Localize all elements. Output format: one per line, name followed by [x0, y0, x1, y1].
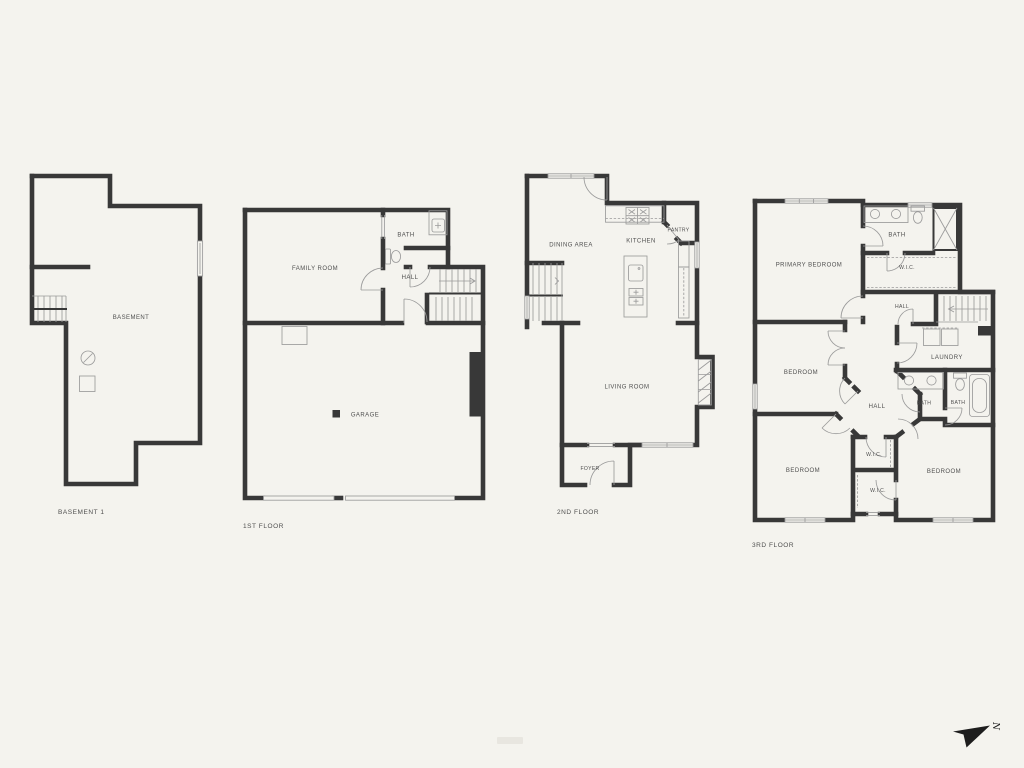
room-label-basement: BASEMENT	[113, 315, 150, 321]
room-label-bedroom3: BEDROOM	[786, 468, 820, 474]
room-label-living: LIVING ROOM	[605, 385, 650, 391]
north-arrow-icon: N	[945, 705, 1005, 755]
pocket-door	[382, 215, 385, 239]
washer-dryer-icon	[922, 328, 959, 346]
stairs-icon	[32, 296, 66, 322]
room-label-bath: BATH	[397, 233, 414, 239]
utility-chase	[470, 352, 482, 417]
stairs-icon	[936, 296, 988, 322]
room-label-wic1: W.I.C.	[899, 265, 915, 271]
kitchen-island	[624, 256, 647, 317]
basement-floorplan: BASEMENT	[22, 165, 222, 530]
room-label-wic2: W.I.C.	[866, 452, 882, 458]
family-room-door	[361, 268, 383, 290]
room-label-garage: GARAGE	[351, 413, 379, 419]
north-label: N	[990, 721, 1000, 731]
bathtub-icon	[970, 375, 990, 417]
dining-door	[584, 177, 607, 200]
door-arcs	[822, 226, 962, 500]
double-vanity-icon	[898, 373, 944, 390]
first-floor-walls	[245, 210, 483, 498]
foyer-entry-door	[587, 444, 615, 485]
floor-label-basement: BASEMENT 1	[58, 509, 105, 516]
watermark	[497, 737, 523, 744]
room-label-dining: DINING AREA	[549, 243, 593, 249]
sink-icon	[429, 211, 447, 235]
room-label-bath1: BATH	[888, 233, 905, 239]
third-floorplan: PRIMARY BEDROOM BATH W.I.C. HALL LAUNDRY…	[748, 195, 1000, 555]
room-label-hall: HALL	[402, 275, 419, 281]
floor-label-third: 3RD FLOOR	[752, 542, 794, 549]
basement-walls	[32, 176, 200, 484]
toilet-icon	[911, 206, 925, 223]
fireplace	[698, 360, 711, 406]
second-floorplan: DINING AREA KITCHEN PANTRY LIVING ROOM F…	[518, 168, 720, 518]
shower-icon	[934, 208, 958, 250]
garage-storage	[282, 327, 307, 345]
stove-icon	[626, 208, 649, 225]
stair-block	[978, 326, 993, 336]
room-label-primary: PRIMARY BEDROOM	[776, 263, 843, 269]
stairs-down-icon	[436, 297, 472, 321]
room-label-foyer: FOYER	[580, 466, 599, 472]
garage-door	[264, 496, 455, 500]
garage-post	[333, 410, 341, 418]
double-vanity-icon	[864, 206, 908, 223]
room-label-bath3: BATH	[951, 400, 965, 406]
room-label-hall-upper: HALL	[895, 304, 909, 310]
room-label-bedroom4: BEDROOM	[927, 469, 961, 475]
floor-label-second: 2ND FLOOR	[557, 509, 599, 516]
garage-entry-door	[404, 299, 427, 323]
basement-window	[197, 241, 202, 276]
room-label-laundry: LAUNDRY	[931, 355, 963, 361]
room-label-hall-center: HALL	[869, 404, 886, 410]
room-label-bath2: BATH	[917, 401, 931, 407]
room-label-bedroom2: BEDROOM	[784, 370, 818, 376]
fridge-counter	[679, 241, 690, 318]
room-label-family-room: FAMILY ROOM	[292, 266, 338, 272]
electrical-panel-icon	[81, 351, 95, 365]
stairs-up-icon	[439, 269, 476, 292]
room-label-wic3: W.I.C.	[870, 488, 886, 494]
utility-box-icon	[80, 376, 96, 392]
room-label-kitchen: KITCHEN	[626, 239, 656, 245]
toilet-icon	[386, 249, 401, 264]
floor-label-first: 1ST FLOOR	[243, 523, 284, 530]
first-floorplan: FAMILY ROOM BATH HALL GARAGE	[238, 200, 493, 535]
toilet-icon	[954, 373, 967, 390]
room-label-pantry: PANTRY	[668, 228, 690, 234]
stairs-icon	[533, 263, 562, 321]
